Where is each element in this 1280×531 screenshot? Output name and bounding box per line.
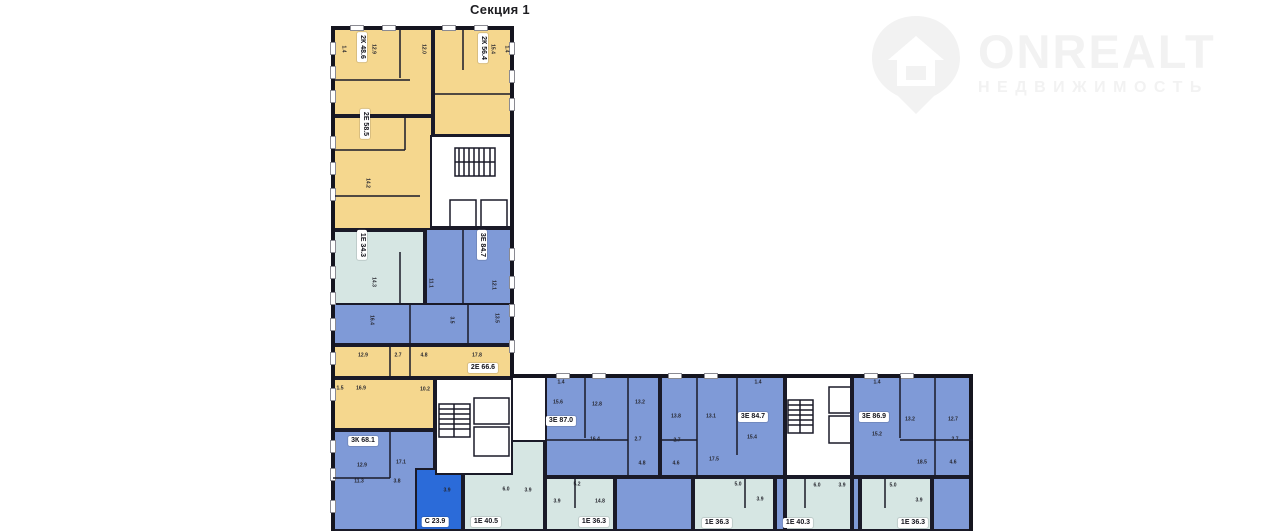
room-area-label: 13.5 [494, 313, 499, 323]
window-mark [668, 373, 682, 379]
apartment-2е-58-5[interactable] [333, 116, 433, 230]
window-mark [704, 373, 718, 379]
window-mark [509, 340, 515, 353]
stairwell-core [430, 135, 513, 228]
apartment-label: 3Е 84.7 [738, 412, 768, 422]
room-area-label: 12.7 [948, 418, 958, 423]
room-area-label: 17.1 [396, 461, 406, 466]
room-area-label: 6.0 [503, 488, 510, 493]
window-mark [330, 318, 336, 331]
room-area-label: 13.2 [635, 401, 645, 406]
window-mark [330, 266, 336, 279]
apartment-label: 3Е 84.7 [477, 230, 487, 260]
room-area-label: 14.3 [371, 277, 376, 287]
window-mark [509, 276, 515, 289]
room-area-label: 11.1 [428, 278, 433, 287]
window-mark [330, 440, 336, 453]
window-mark [509, 304, 515, 317]
window-mark [330, 240, 336, 253]
room-area-label: 3.9 [839, 484, 846, 489]
room-area-label: 3.5 [449, 317, 454, 324]
room-area-label: 17.8 [472, 354, 482, 359]
window-mark [330, 292, 336, 305]
outer-wall [969, 374, 973, 531]
room-area-label: 15.2 [872, 433, 882, 438]
apartment-label: 1Е 36.3 [579, 517, 609, 527]
room-area-label: 3.9 [554, 500, 561, 505]
apartment-label: 2Е 58.5 [360, 109, 370, 139]
window-mark [509, 42, 515, 55]
window-mark [442, 25, 456, 31]
room-area-label: 14.8 [595, 500, 605, 505]
room-area-label: 4.6 [950, 461, 957, 466]
corridor-region [852, 477, 860, 531]
room-area-label: 15.4 [490, 44, 495, 54]
room-area-label: 18.5 [917, 461, 927, 466]
apartment-2к-56-4[interactable] [433, 28, 513, 136]
room-area-label: 14.2 [365, 178, 370, 188]
window-mark [864, 373, 878, 379]
window-mark [474, 25, 488, 31]
room-area-label: 15.6 [553, 401, 563, 406]
section-title: Секция 1 [430, 2, 570, 17]
room-area-label: 16.4 [590, 438, 600, 443]
apartment-3е-84-7[interactable] [333, 303, 513, 345]
room-area-label: 4.8 [421, 354, 428, 359]
window-mark [900, 373, 914, 379]
room-area-label: 15.4 [747, 436, 757, 441]
window-mark [509, 70, 515, 83]
room-area-label: 12.1 [491, 280, 496, 290]
room-area-label: 13.1 [706, 415, 716, 420]
window-mark [330, 42, 336, 55]
window-mark [330, 136, 336, 149]
watermark-subtitle: НЕДВИЖИМОСТЬ [978, 79, 1216, 97]
room-area-label: 13.2 [905, 418, 915, 423]
room-area-label: 17.5 [709, 458, 719, 463]
apartment-3е-86-9[interactable] [932, 477, 973, 531]
room-area-label: 2.7 [635, 438, 642, 443]
onrealt-logo-icon [868, 14, 964, 116]
room-area-label: 12.9 [357, 464, 367, 469]
apartment-label: 3Е 86.9 [859, 412, 889, 422]
window-mark [350, 25, 364, 31]
room-area-label: 4.6 [673, 462, 680, 467]
window-mark [330, 388, 336, 401]
apartment-label: 3К 68.1 [348, 436, 378, 446]
room-area-label: 13.8 [671, 415, 681, 420]
room-area-label: 16.9 [356, 387, 366, 392]
room-area-label: 1.4 [558, 381, 565, 386]
room-area-label: 1.5 [337, 387, 344, 392]
room-area-label: 3.9 [916, 499, 923, 504]
window-mark [330, 162, 336, 175]
apartment-label: 1Е 40.5 [471, 517, 501, 527]
apartment-2е-66-6[interactable] [333, 345, 513, 378]
room-area-label: 2.7 [395, 354, 402, 359]
floor-plan-page: Секция 1 ONREALT НЕДВИЖИМОСТЬ 1.412.912.… [0, 0, 1280, 531]
apartment-1е-34-3[interactable] [333, 230, 425, 310]
window-mark [330, 188, 336, 201]
room-area-label: 3.9 [757, 498, 764, 503]
window-mark [330, 352, 336, 365]
apartment-label: 2К 48.6 [357, 32, 367, 62]
window-mark [330, 66, 336, 79]
room-area-label: 3.9 [444, 489, 451, 494]
apartment-label: 3Е 87.0 [546, 416, 576, 426]
apartment-3е-84-7[interactable] [425, 228, 513, 305]
window-mark [509, 98, 515, 111]
watermark-brand: ONREALT [978, 28, 1216, 75]
apartment-label: 1Е 36.3 [702, 518, 732, 528]
apartment-label: 2Е 66.6 [468, 363, 498, 373]
room-area-label: 5.0 [735, 483, 742, 488]
room-area-label: 5.0 [890, 484, 897, 489]
stairwell-core [435, 378, 513, 475]
stairwell-core [785, 376, 852, 477]
apartment-label: 1Е 34.3 [357, 230, 367, 260]
apartment-label: 1Е 36.3 [898, 518, 928, 528]
window-mark [382, 25, 396, 31]
room-area-label: 3.8 [394, 480, 401, 485]
corridor-region [615, 477, 693, 531]
watermark: ONREALT НЕДВИЖИМОСТЬ [868, 14, 1216, 116]
room-area-label: 1.4 [504, 46, 509, 53]
room-area-label: 2.7 [952, 438, 959, 443]
apartment-label: 2К 56.4 [478, 33, 488, 63]
window-mark [592, 373, 606, 379]
room-area-label: 1.4 [341, 46, 346, 53]
room-area-label: 12.9 [371, 44, 376, 54]
room-area-label: 12.8 [592, 403, 602, 408]
window-mark [330, 468, 336, 481]
room-area-label: 2.7 [674, 439, 681, 444]
room-area-label: 6.0 [814, 484, 821, 489]
window-mark [556, 373, 570, 379]
room-area-label: 12.9 [358, 354, 368, 359]
room-area-label: 5.2 [574, 483, 581, 488]
apartment-2к-48-6[interactable] [333, 28, 433, 116]
room-area-label: 1.4 [755, 381, 762, 386]
watermark-text: ONREALT НЕДВИЖИМОСТЬ [978, 14, 1216, 97]
apartment-label: 1Е 40.3 [783, 518, 813, 528]
room-area-label: 4.8 [639, 462, 646, 467]
room-area-label: 11.3 [354, 480, 363, 485]
window-mark [330, 500, 336, 513]
room-area-label: 1.4 [874, 381, 881, 386]
room-area-label: 10.2 [420, 388, 430, 393]
window-mark [509, 248, 515, 261]
room-area-label: 12.0 [421, 44, 426, 54]
room-area-label: 16.4 [369, 315, 374, 325]
apartment-label: С 23.9 [422, 517, 449, 527]
room-area-label: 3.9 [525, 489, 532, 494]
window-mark [330, 90, 336, 103]
